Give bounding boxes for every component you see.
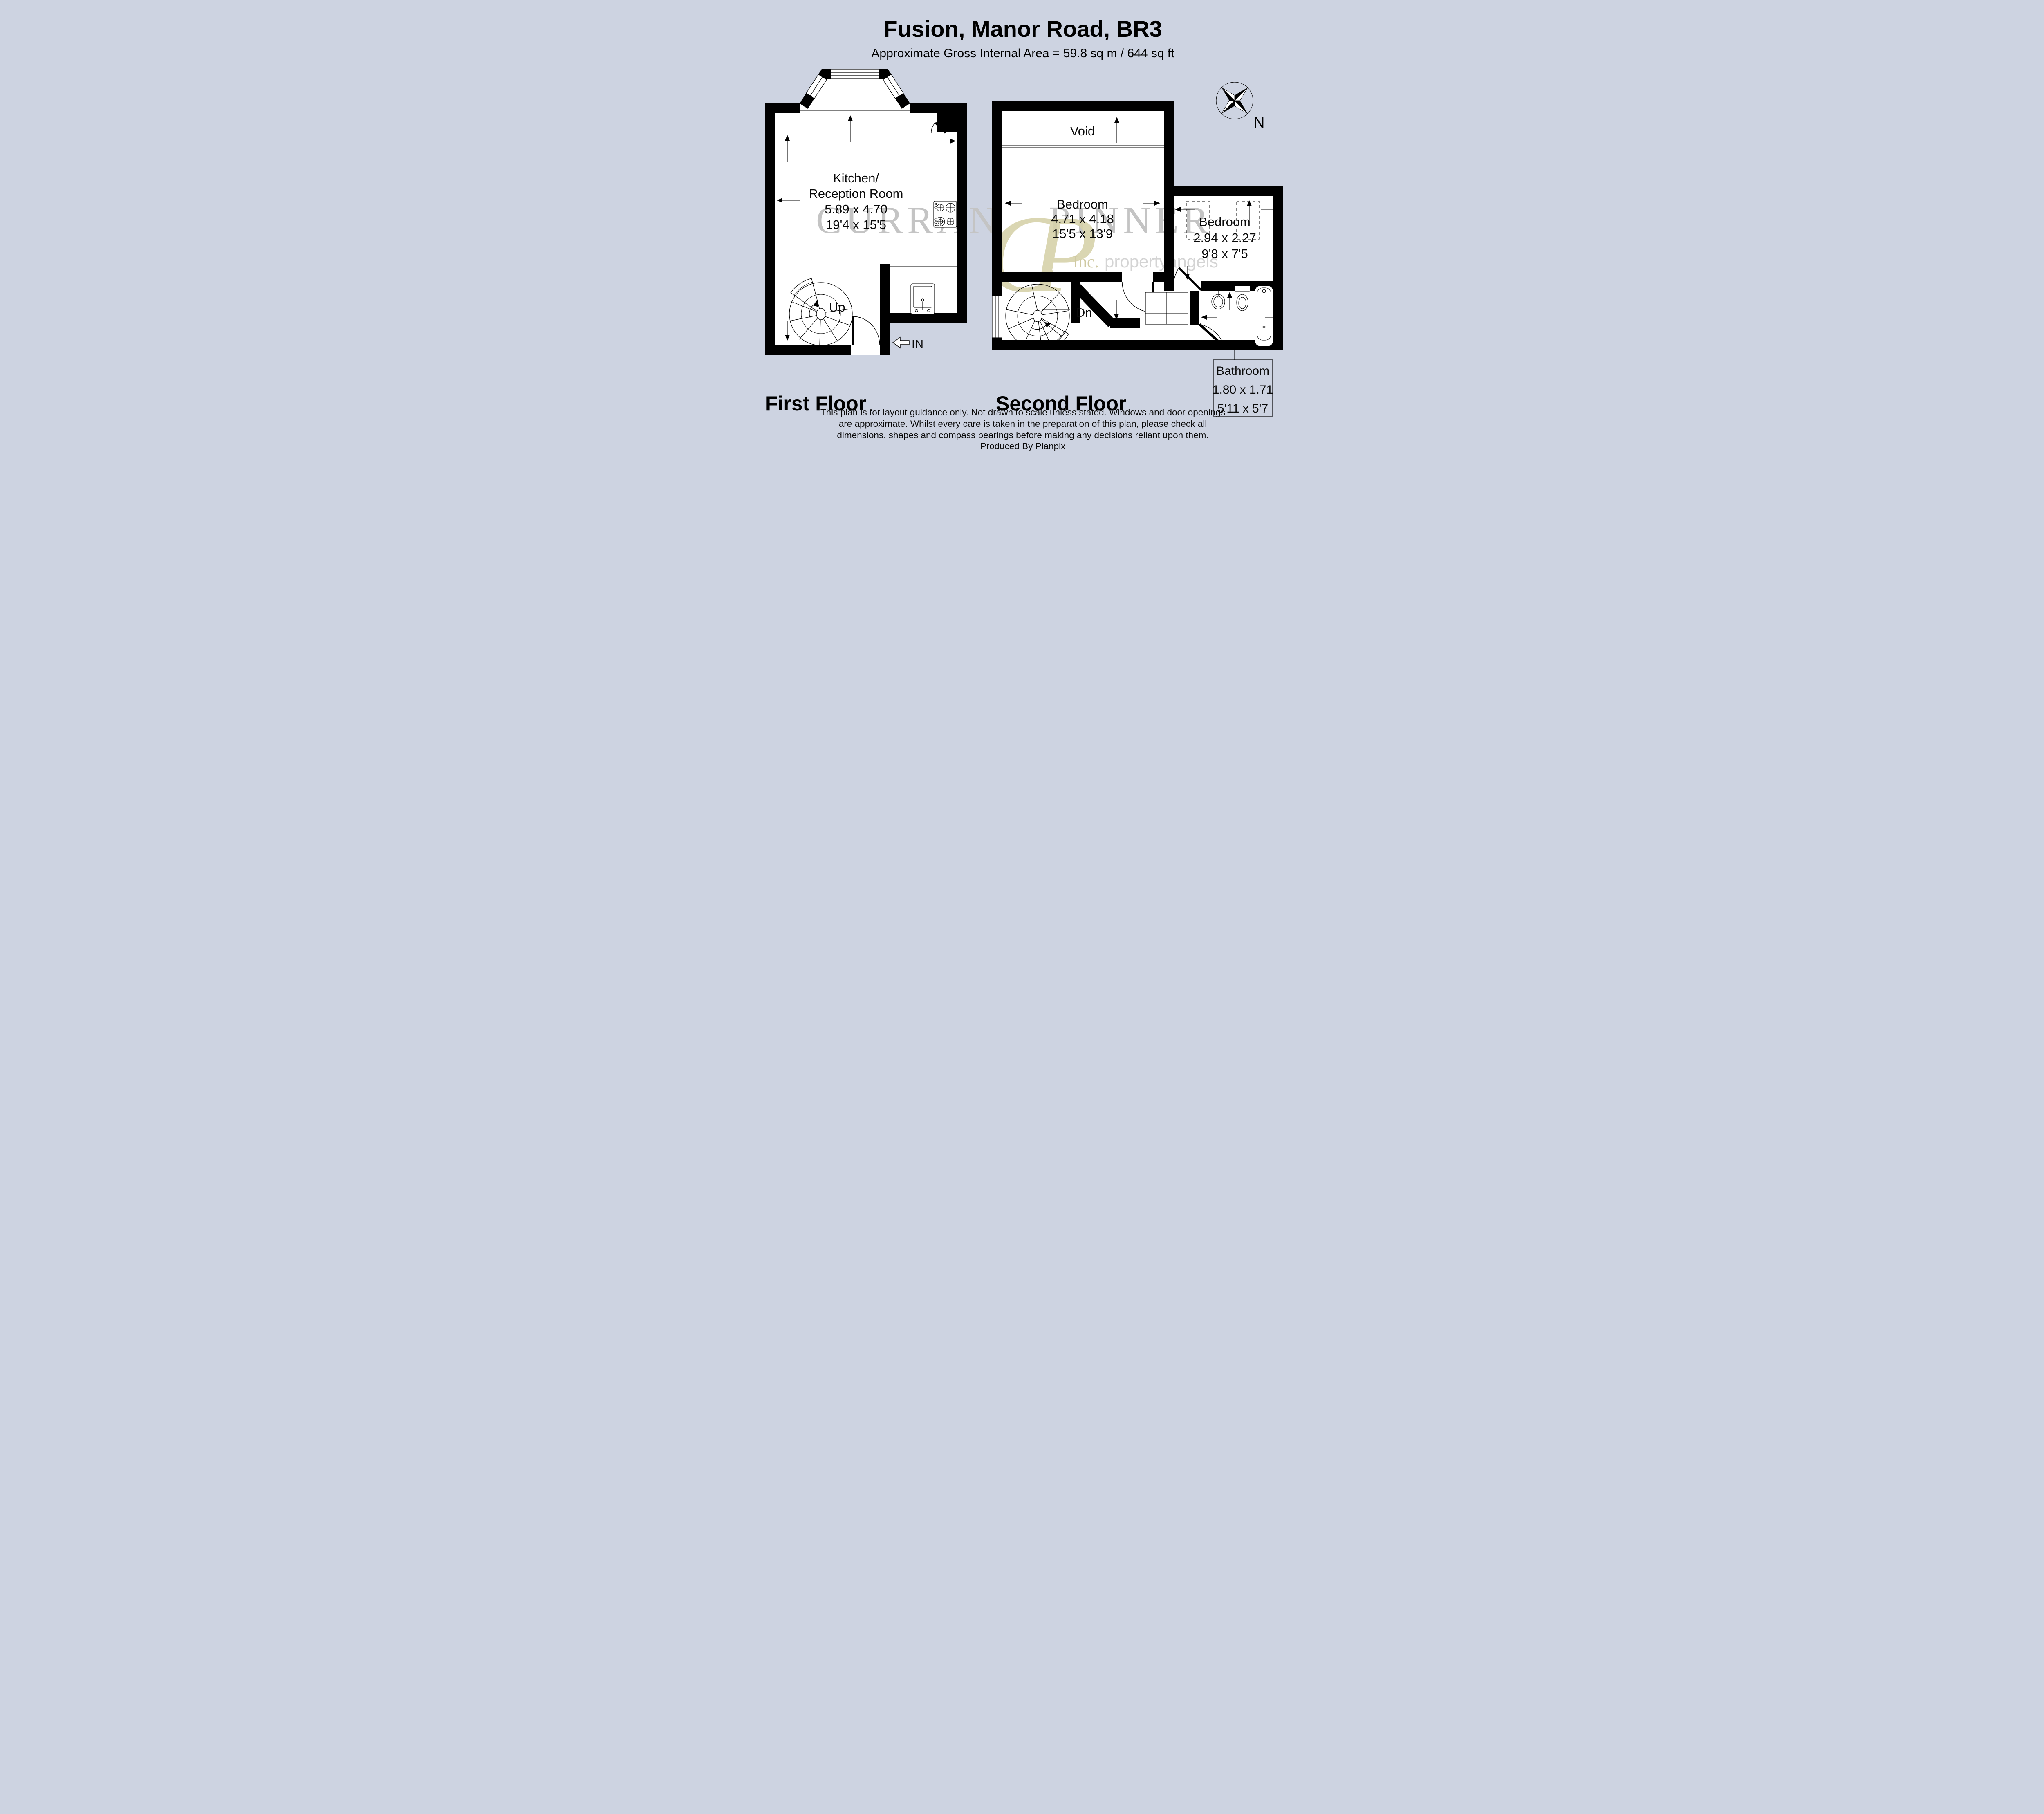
compass-north-label: N [1253, 114, 1264, 131]
kitchen-label-line1: Kitchen/ [833, 171, 879, 185]
kitchen-label-line2: Reception Room [809, 186, 903, 201]
floorplan-page: CURRAN PINNER CP Inc. propertyangels [728, 0, 1316, 453]
disclaimer-line-2: are approximate. Whilst every care is ta… [839, 419, 1207, 429]
footer: This plan is for layout guidance only. N… [820, 407, 1225, 451]
stairs-up-label: Up [829, 300, 845, 314]
credit-label: Produced By Planpix [980, 441, 1066, 451]
bedroom-main-label: Bedroom [1057, 197, 1108, 211]
bedroom-second-imperial: 9'8 x 7'5 [1201, 247, 1248, 261]
bathroom-label: Bathroom [1216, 364, 1269, 378]
page-title: Fusion, Manor Road, BR3 [883, 16, 1162, 42]
bathroom-metric: 1.80 x 1.71 [1213, 383, 1273, 397]
compass-icon: N [1216, 82, 1264, 131]
page-subtitle: Approximate Gross Internal Area = 59.8 s… [871, 47, 1174, 60]
disclaimer-line-3: dimensions, shapes and compass bearings … [837, 430, 1208, 440]
second-floor-window [992, 296, 1002, 338]
bedroom-second-metric: 2.94 x 2.27 [1193, 231, 1256, 245]
disclaimer-line-1: This plan is for layout guidance only. N… [820, 407, 1225, 417]
void-label: Void [1070, 124, 1095, 138]
kitchen-dims-metric: 5.89 x 4.70 [825, 202, 887, 216]
stairs-dn-label: Dn [1076, 305, 1092, 320]
landing-wardrobe [1145, 292, 1188, 324]
kitchen-dims-imperial: 19'4 x 15'5 [826, 218, 886, 232]
hob-icon [934, 201, 957, 227]
floorplan-canvas: CURRAN PINNER CP Inc. propertyangels [728, 0, 1316, 453]
bathtub-icon [1255, 286, 1273, 346]
entrance-in-arrow-icon [893, 337, 909, 348]
bedroom-second-label: Bedroom [1199, 215, 1251, 229]
sink-icon [911, 284, 935, 314]
bathroom-callout: Bathroom 1.80 x 1.71 5'11 x 5'7 [1213, 350, 1273, 416]
watermark-inc: Inc. [1073, 253, 1099, 271]
bedroom-main-imperial: 15'5 x 13'9 [1052, 226, 1113, 241]
entrance-in-label: IN [912, 338, 923, 351]
watermark-brand: propertyangels [1105, 252, 1218, 271]
bedroom-main-metric: 4.71 x 4.18 [1051, 212, 1114, 226]
